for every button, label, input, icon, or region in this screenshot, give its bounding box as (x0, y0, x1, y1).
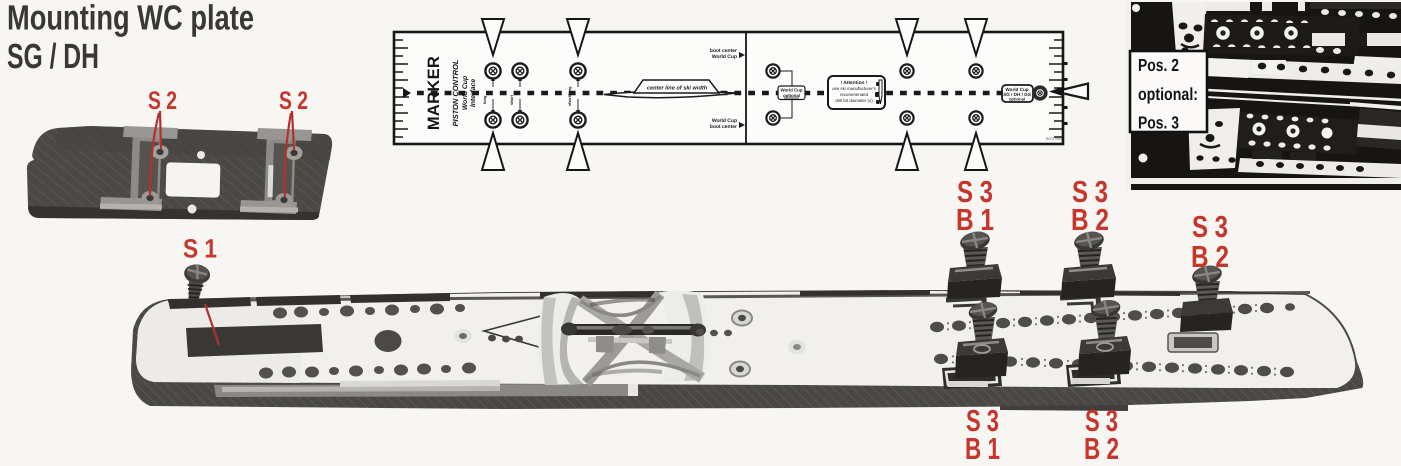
svg-text:Pos. 3: Pos. 3 (1138, 113, 1179, 133)
svg-text:short: short (509, 94, 514, 105)
svg-text:use ski manufacturer's: use ski manufacturer's (832, 86, 877, 91)
svg-text:drill bit diameter (x): drill bit diameter (x) (835, 98, 873, 103)
svg-text:S 2: S 2 (148, 87, 177, 115)
svg-text:boot center: boot center (710, 124, 737, 130)
svg-text:optional: optional (783, 93, 800, 98)
svg-text:S 1: S 1 (183, 234, 217, 264)
svg-text:recommended: recommended (840, 92, 869, 97)
svg-text:S 2: S 2 (279, 87, 308, 115)
svg-text:World Cup: World Cup (462, 76, 469, 110)
svg-text:SG / DH: SG / DH (7, 37, 99, 76)
svg-text:long: long (482, 95, 487, 104)
svg-text:Interface: Interface (470, 79, 477, 108)
svg-text:PISTON CONTROL: PISTON CONTROL (451, 59, 460, 126)
svg-text:short/long: short/long (567, 86, 572, 106)
svg-text:Mounting WC plate: Mounting WC plate (7, 0, 254, 38)
svg-text:MARKER: MARKER (425, 56, 443, 130)
svg-text:B 1: B 1 (965, 432, 1000, 466)
svg-text:B 2: B 2 (1084, 432, 1119, 466)
svg-text:Pos. 2: Pos. 2 (1138, 55, 1179, 75)
svg-text:center line of ski width: center line of ski width (647, 85, 708, 92)
svg-text:World Cup: World Cup (780, 88, 802, 93)
svg-text:optional:: optional: (1138, 84, 1198, 104)
svg-text:S 3: S 3 (1192, 210, 1228, 244)
svg-text:optional: optional (1009, 97, 1025, 102)
svg-text:World Cup: World Cup (712, 54, 737, 60)
